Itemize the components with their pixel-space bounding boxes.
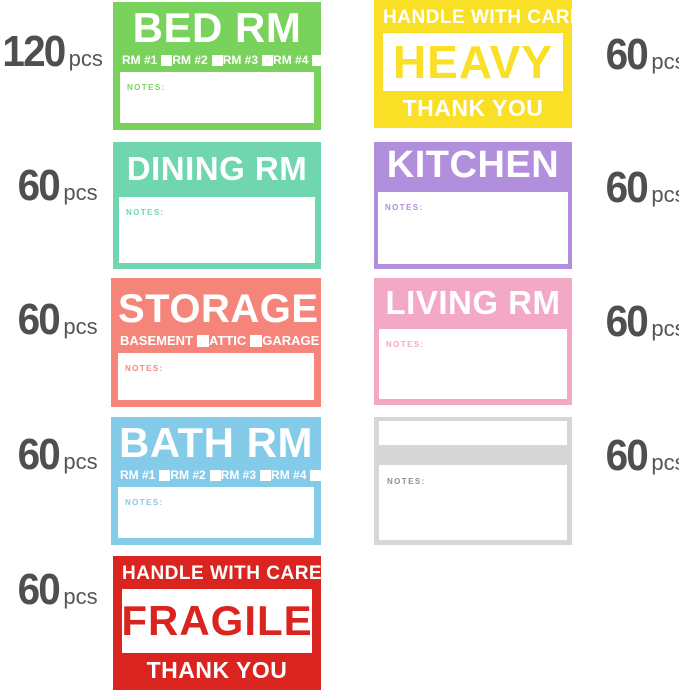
checkbox-option: RM #4 [271, 468, 321, 482]
checkbox-option: RM #1 [120, 468, 170, 482]
product-image: 120pcs 60pcs 60pcs 60pcs 60pcs 60pcs 60p… [0, 0, 679, 691]
label-title: STORAGE [118, 288, 314, 330]
checkbox-label: RM #4 [271, 468, 306, 482]
warning-word-box: FRAGILE [122, 589, 312, 653]
notes-label: NOTES: [386, 340, 425, 349]
checkbox-label: RM #2 [170, 468, 205, 482]
quantity-count: 120 [3, 30, 65, 74]
label-title: BED RM [120, 6, 314, 50]
checkbox-label: ATTIC [209, 333, 246, 348]
quantity-count: 60 [18, 298, 59, 342]
label-title: LIVING RM [379, 286, 567, 321]
notes-area: NOTES: [379, 465, 567, 540]
checkbox-option: GARAGE [262, 333, 335, 348]
label-title: HEAVY [393, 35, 553, 89]
quantity-bath-rm: 60pcs [4, 433, 108, 477]
notes-area: NOTES: [119, 197, 315, 263]
notes-area: NOTES: [120, 72, 314, 123]
checkbox-label: RM #1 [120, 468, 155, 482]
quantity-unit: pcs [69, 46, 103, 72]
label-blank: NOTES: [374, 417, 572, 545]
label-bed-rm: BED RM RM #1 RM #2 RM #3 RM #4 NOTES: [113, 2, 321, 130]
label-title: BATH RM [118, 421, 314, 465]
notes-label: NOTES: [385, 203, 424, 212]
checkbox-label: RM #3 [221, 468, 256, 482]
checkbox-option: RM #2 [170, 468, 220, 482]
checkbox-row: RM #1 RM #2 RM #3 RM #4 [122, 53, 312, 67]
notes-label: NOTES: [125, 498, 164, 507]
checkbox-label: RM #2 [172, 53, 207, 67]
checkbox-option: RM #2 [172, 53, 222, 67]
checkbox-label: RM #3 [223, 53, 258, 67]
quantity-unit: pcs [651, 316, 679, 342]
label-kitchen: KITCHEN NOTES: [374, 142, 572, 269]
checkbox-option: ATTIC [209, 333, 262, 348]
notes-label: NOTES: [127, 83, 166, 92]
notes-area: NOTES: [118, 487, 314, 538]
checkbox-icon [161, 55, 172, 66]
thank-you-text: THANK YOU [122, 657, 312, 684]
quantity-unit: pcs [63, 584, 97, 610]
quantity-unit: pcs [651, 49, 679, 75]
label-title: FRAGILE [121, 597, 312, 645]
checkbox-label: RM #1 [122, 53, 157, 67]
quantity-unit: pcs [63, 180, 97, 206]
label-living-rm: LIVING RM NOTES: [374, 278, 572, 405]
handle-with-care-text: HANDLE WITH CARE [383, 7, 563, 29]
label-bath-rm: BATH RM RM #1 RM #2 RM #3 RM #4 NOTES: [111, 417, 321, 545]
quantity-dining-rm: 60pcs [4, 164, 108, 208]
quantity-count: 60 [18, 433, 59, 477]
quantity-count: 60 [18, 164, 59, 208]
quantity-storage: 60pcs [4, 298, 108, 342]
quantity-count: 60 [606, 33, 647, 77]
label-fragile: HANDLE WITH CARE FRAGILE THANK YOU [113, 556, 321, 690]
quantity-blank-label: 60pcs [592, 434, 679, 478]
label-storage: STORAGE BASEMENT ATTIC GARAGE NOTES: [111, 278, 321, 407]
checkbox-icon [262, 55, 273, 66]
blank-title-area [379, 421, 567, 445]
notes-area: NOTES: [378, 192, 568, 264]
quantity-kitchen: 60pcs [592, 166, 679, 210]
checkbox-icon [197, 335, 209, 347]
label-heavy: HANDLE WITH CARE HEAVY THANK YOU [374, 0, 572, 128]
checkbox-option: RM #1 [122, 53, 172, 67]
checkbox-option: RM #3 [221, 468, 271, 482]
checkbox-icon [260, 470, 271, 481]
quantity-heavy: 60pcs [592, 33, 679, 77]
quantity-count: 60 [606, 300, 647, 344]
quantity-count: 60 [18, 568, 59, 612]
notes-area: NOTES: [118, 353, 314, 400]
checkbox-label: BASEMENT [120, 333, 193, 348]
label-dining-rm: DINING RM NOTES: [113, 142, 321, 269]
checkbox-row: RM #1 RM #2 RM #3 RM #4 [120, 468, 312, 482]
label-title: KITCHEN [378, 146, 568, 186]
notes-label: NOTES: [125, 364, 164, 373]
checkbox-icon [310, 470, 321, 481]
checkbox-icon [210, 470, 221, 481]
quantity-unit: pcs [63, 314, 97, 340]
handle-with-care-text: HANDLE WITH CARE [122, 563, 312, 585]
quantity-unit: pcs [651, 450, 679, 476]
quantity-count: 60 [606, 166, 647, 210]
checkbox-option: RM #3 [223, 53, 273, 67]
checkbox-icon [312, 55, 323, 66]
checkbox-option: RM #4 [273, 53, 323, 67]
notes-label: NOTES: [387, 477, 426, 486]
quantity-living-rm: 60pcs [592, 300, 679, 344]
checkbox-label: GARAGE [262, 333, 319, 348]
quantity-unit: pcs [63, 449, 97, 475]
checkbox-option: BASEMENT [120, 333, 209, 348]
warning-word-box: HEAVY [383, 33, 563, 91]
notes-area: NOTES: [379, 329, 567, 399]
quantity-bed-rm: 120pcs [0, 30, 102, 74]
checkbox-icon [323, 335, 335, 347]
blank-divider-band [379, 445, 567, 465]
quantity-count: 60 [606, 434, 647, 478]
quantity-unit: pcs [651, 182, 679, 208]
checkbox-icon [159, 470, 170, 481]
checkbox-icon [212, 55, 223, 66]
checkbox-label: RM #4 [273, 53, 308, 67]
checkbox-row: BASEMENT ATTIC GARAGE [120, 333, 312, 348]
checkbox-icon [250, 335, 262, 347]
notes-label: NOTES: [126, 208, 165, 217]
thank-you-text: THANK YOU [383, 95, 563, 122]
quantity-fragile: 60pcs [4, 568, 108, 612]
label-title: DINING RM [119, 152, 315, 187]
